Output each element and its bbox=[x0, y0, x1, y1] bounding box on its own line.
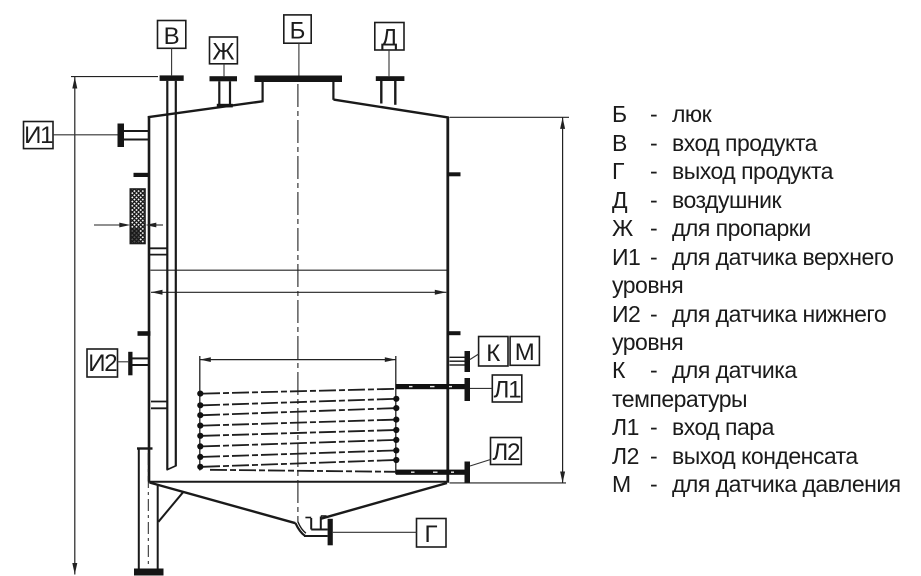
svg-text:Б: Б bbox=[290, 17, 306, 44]
svg-text:Д: Д bbox=[381, 25, 397, 52]
svg-text:В: В bbox=[164, 23, 180, 50]
svg-text:Г: Г bbox=[425, 521, 438, 548]
svg-text:Ж: Ж bbox=[212, 38, 234, 65]
